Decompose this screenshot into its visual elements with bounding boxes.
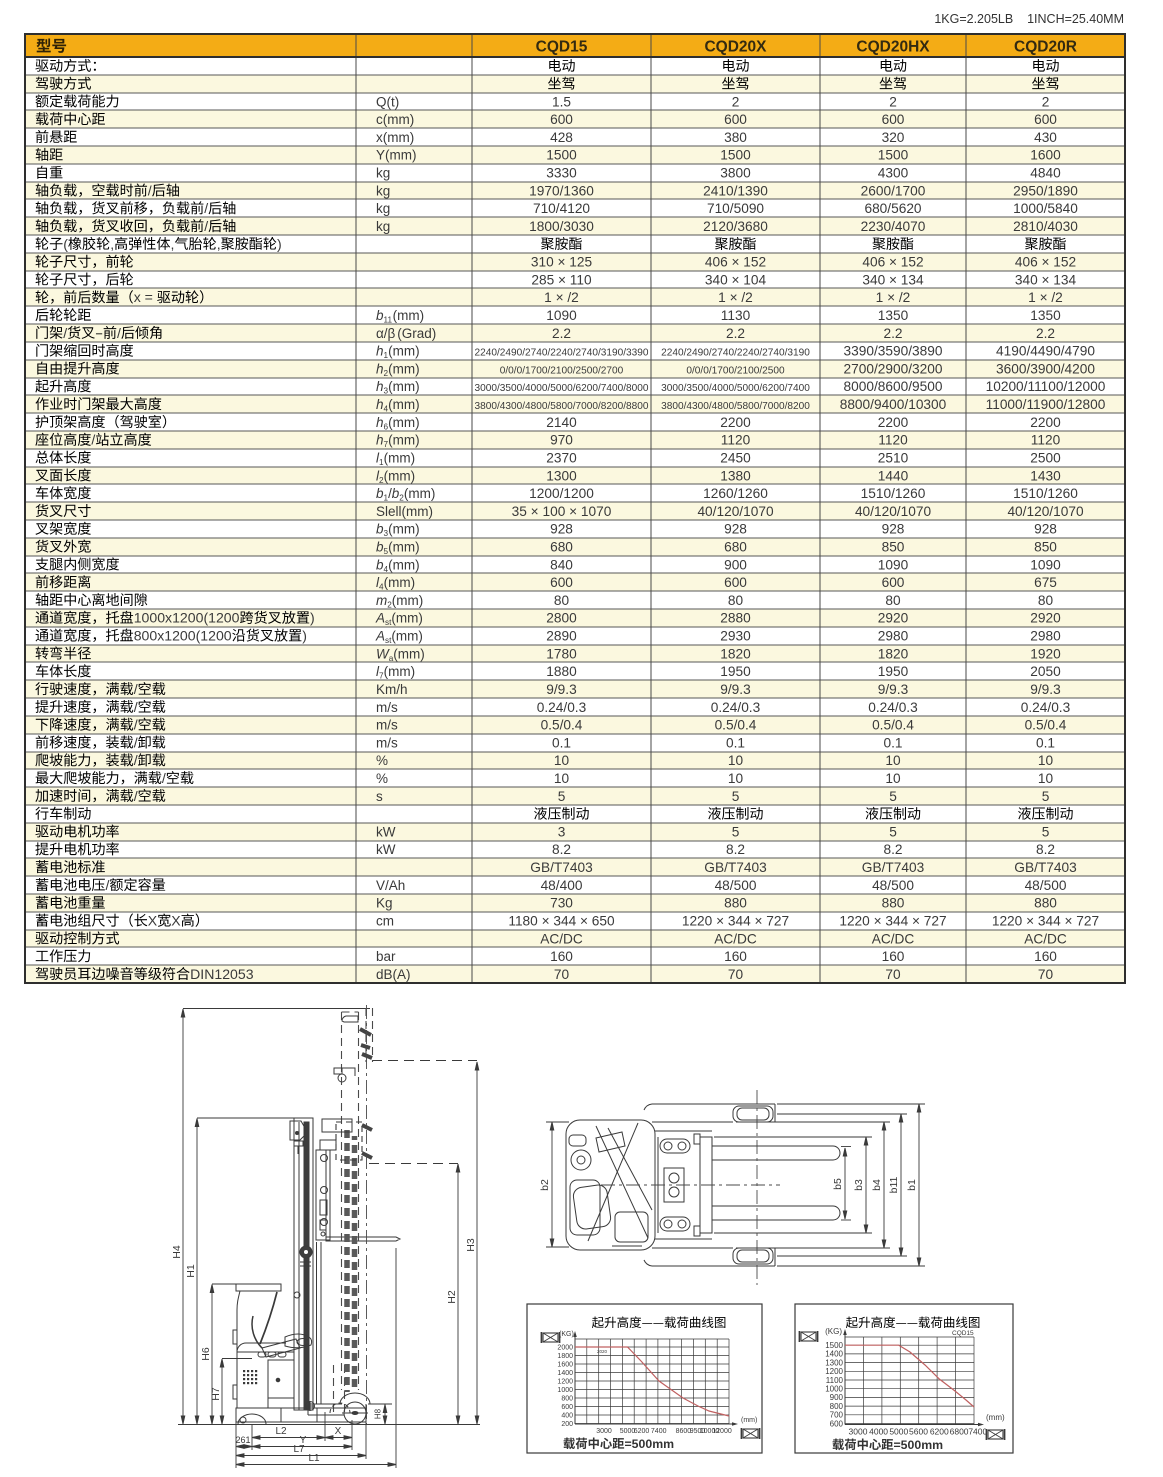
svg-text:2600/1700: 2600/1700 <box>861 183 926 198</box>
svg-text:0.24/0.3: 0.24/0.3 <box>537 700 587 715</box>
svg-text:1300: 1300 <box>546 468 577 483</box>
svg-text:970: 970 <box>550 433 573 448</box>
svg-text:880: 880 <box>1034 896 1057 911</box>
svg-text:1820: 1820 <box>720 646 751 661</box>
svg-text:1 × /2: 1 × /2 <box>544 290 579 305</box>
svg-text:1130: 1130 <box>721 308 751 323</box>
svg-text:1000x1200(1200: 1000x1200(1200 <box>134 610 240 626</box>
svg-text:1120: 1120 <box>1031 433 1061 448</box>
svg-text:1430: 1430 <box>1030 468 1061 483</box>
svg-text:80: 80 <box>885 593 901 608</box>
svg-text:600: 600 <box>550 112 573 127</box>
svg-text:Kg: Kg <box>376 896 393 911</box>
svg-text:kg: kg <box>376 166 390 181</box>
svg-text:2200: 2200 <box>720 415 751 430</box>
svg-text:48/400: 48/400 <box>541 878 583 893</box>
svg-text:9/9.3: 9/9.3 <box>720 682 751 697</box>
svg-text:1800/3030: 1800/3030 <box>529 219 594 234</box>
svg-text:1200: 1200 <box>825 1367 843 1376</box>
svg-text:=500mm: =500mm <box>625 1437 675 1451</box>
svg-text:3000: 3000 <box>849 1427 868 1437</box>
svg-text:600: 600 <box>1034 112 1057 127</box>
svg-text:1950: 1950 <box>878 664 909 679</box>
svg-text:1000: 1000 <box>825 1385 843 1394</box>
svg-text:680/5620: 680/5620 <box>864 201 921 216</box>
svg-text:3330: 3330 <box>546 166 577 181</box>
svg-text:h: h <box>376 379 384 394</box>
svg-text:5: 5 <box>558 789 566 804</box>
svg-text:(KG): (KG) <box>559 1331 574 1338</box>
svg-text:CQD15: CQD15 <box>952 1330 974 1337</box>
svg-text:160: 160 <box>1034 949 1057 964</box>
svg-text:2890: 2890 <box>546 629 577 644</box>
svg-text:1120: 1120 <box>721 433 751 448</box>
svg-text:h: h <box>376 361 384 376</box>
svg-text:2200: 2200 <box>1030 415 1061 430</box>
svg-text:X: X <box>335 1426 342 1437</box>
svg-text:): ) <box>302 628 307 644</box>
svg-text:2240/2490/2740/2240/2740/3190/: 2240/2490/2740/2240/2740/3190/3390 <box>474 348 648 359</box>
svg-text:2: 2 <box>889 94 897 109</box>
svg-text:m/s: m/s <box>376 735 398 750</box>
svg-text:c(mm): c(mm) <box>376 112 414 127</box>
svg-text:kg: kg <box>376 219 390 234</box>
svg-text:7400: 7400 <box>968 1427 987 1437</box>
svg-text:1880: 1880 <box>546 664 577 679</box>
svg-text:/: / <box>106 877 110 893</box>
svg-text:(mm): (mm) <box>986 1413 1005 1422</box>
svg-text:1780: 1780 <box>546 646 577 661</box>
svg-text:10: 10 <box>554 753 570 768</box>
svg-text:2920: 2920 <box>878 611 909 626</box>
svg-text:900: 900 <box>724 557 747 572</box>
svg-text:Q(t): Q(t) <box>376 94 399 109</box>
svg-text:406 × 152: 406 × 152 <box>1015 255 1076 270</box>
svg-text:600: 600 <box>724 112 747 127</box>
svg-text:/β: /β <box>384 326 396 341</box>
svg-text:406 × 152: 406 × 152 <box>705 255 766 270</box>
svg-text:h: h <box>376 433 384 448</box>
svg-text:X: X <box>171 913 181 929</box>
svg-text:800x1200(1200: 800x1200(1200 <box>134 628 232 644</box>
svg-text:2140: 2140 <box>546 415 577 430</box>
svg-text:kW: kW <box>376 824 396 839</box>
svg-text:8.2: 8.2 <box>883 842 902 857</box>
svg-text:380: 380 <box>724 130 747 145</box>
svg-text:(mm): (mm) <box>384 664 415 679</box>
svg-text:70: 70 <box>554 967 570 982</box>
svg-text:1260/1260: 1260/1260 <box>703 486 768 501</box>
svg-text:2.2: 2.2 <box>552 326 571 341</box>
svg-text:2920: 2920 <box>1030 611 1061 626</box>
svg-text:(mm): (mm) <box>388 522 419 537</box>
svg-text:2.2: 2.2 <box>726 326 745 341</box>
svg-text:0/0/0/1700/2100/2500: 0/0/0/1700/2100/2500 <box>686 365 785 376</box>
svg-text:b2: b2 <box>539 1179 551 1191</box>
svg-text:5: 5 <box>889 824 897 839</box>
svg-text:H2: H2 <box>446 1290 458 1304</box>
svg-text:40/120/1070: 40/120/1070 <box>1007 504 1084 519</box>
svg-text:0.5/0.4: 0.5/0.4 <box>715 718 757 733</box>
svg-text:DIN12053: DIN12053 <box>190 966 254 982</box>
svg-text:kW: kW <box>376 842 396 857</box>
svg-text:1950: 1950 <box>720 664 751 679</box>
svg-text:0.24/0.3: 0.24/0.3 <box>711 700 761 715</box>
svg-text:H7: H7 <box>210 1387 222 1401</box>
svg-text:x =: x = <box>134 289 153 305</box>
svg-text:(mm): (mm) <box>388 344 419 359</box>
svg-text:8.2: 8.2 <box>726 842 745 857</box>
svg-text:AC/DC: AC/DC <box>1024 931 1067 946</box>
svg-text:,: , <box>110 236 114 252</box>
svg-text:=500mm: =500mm <box>894 1438 944 1452</box>
svg-text:6200: 6200 <box>930 1427 949 1437</box>
svg-text:%: % <box>376 771 388 786</box>
svg-text:(mm): (mm) <box>393 308 424 323</box>
svg-text:1000/5840: 1000/5840 <box>1013 201 1078 216</box>
svg-text:80: 80 <box>554 593 570 608</box>
svg-text:850: 850 <box>1034 540 1057 555</box>
svg-text:/: / <box>134 717 138 733</box>
svg-text:7400: 7400 <box>651 1428 667 1435</box>
svg-text:α: α <box>376 326 384 341</box>
svg-text:48/500: 48/500 <box>1025 878 1067 893</box>
svg-text:h: h <box>376 344 384 359</box>
svg-text:1500: 1500 <box>546 148 577 163</box>
svg-text:2120/3680: 2120/3680 <box>703 219 768 234</box>
svg-text:0.1: 0.1 <box>1036 735 1055 750</box>
svg-text:1300: 1300 <box>825 1358 843 1367</box>
svg-text:8800/9400/10300: 8800/9400/10300 <box>840 397 947 412</box>
svg-text:4000: 4000 <box>869 1427 888 1437</box>
svg-text:10: 10 <box>728 753 744 768</box>
svg-text:H6: H6 <box>200 1347 212 1361</box>
svg-text:h: h <box>376 415 384 430</box>
svg-text:10: 10 <box>554 771 570 786</box>
svg-text:2700/2900/3200: 2700/2900/3200 <box>844 361 943 376</box>
svg-text:L7: L7 <box>293 1444 305 1455</box>
svg-text:2230/4070: 2230/4070 <box>861 219 926 234</box>
svg-text:/: / <box>134 734 138 750</box>
svg-text:710/4120: 710/4120 <box>533 201 590 216</box>
svg-text:800: 800 <box>561 1396 573 1403</box>
svg-text:1380: 1380 <box>720 468 751 483</box>
svg-text:0.1: 0.1 <box>883 735 902 750</box>
svg-text:850: 850 <box>882 540 905 555</box>
svg-text:48/500: 48/500 <box>872 878 914 893</box>
svg-text:2050: 2050 <box>1030 664 1061 679</box>
svg-text:900: 900 <box>830 1393 844 1402</box>
svg-text:/: / <box>204 218 208 234</box>
svg-text:11: 11 <box>384 316 393 325</box>
svg-text:3600/3900/4200: 3600/3900/4200 <box>996 361 1095 376</box>
svg-text:1120: 1120 <box>878 433 908 448</box>
svg-text:1400: 1400 <box>825 1350 843 1359</box>
svg-text:X: X <box>148 913 158 929</box>
svg-text:): ) <box>277 236 282 252</box>
svg-text:AC/DC: AC/DC <box>872 931 915 946</box>
svg-text:s: s <box>376 789 383 804</box>
svg-text:H1: H1 <box>185 1264 197 1278</box>
svg-text:5: 5 <box>732 789 740 804</box>
svg-text:2.2: 2.2 <box>1036 326 1055 341</box>
svg-text:3000/3500/4000/5000/6200/7400: 3000/3500/4000/5000/6200/7400 <box>661 383 810 394</box>
svg-text:m: m <box>376 593 387 608</box>
svg-text:2410/1390: 2410/1390 <box>703 183 768 198</box>
svg-text:(mm): (mm) <box>404 486 435 501</box>
svg-text:400: 400 <box>561 1413 573 1420</box>
svg-text:b3: b3 <box>853 1179 865 1191</box>
svg-text:Km/h: Km/h <box>376 682 408 697</box>
svg-text:428: 428 <box>550 130 573 145</box>
svg-text:AC/DC: AC/DC <box>540 931 583 946</box>
svg-text:1000: 1000 <box>557 1387 573 1394</box>
svg-text:2800: 2800 <box>546 611 577 626</box>
svg-text:928: 928 <box>1034 522 1057 537</box>
svg-text:(mm): (mm) <box>393 646 424 661</box>
svg-text:880: 880 <box>724 896 747 911</box>
svg-text:L2: L2 <box>275 1426 287 1437</box>
svg-text:2980: 2980 <box>1030 629 1061 644</box>
svg-text:b11: b11 <box>888 1176 900 1193</box>
svg-text:m/s: m/s <box>376 700 398 715</box>
svg-text:H8: H8 <box>374 1408 383 1419</box>
svg-text:3000: 3000 <box>596 1428 612 1435</box>
svg-text:70: 70 <box>1038 967 1054 982</box>
svg-text:H3: H3 <box>465 1238 477 1252</box>
svg-text:(mm): (mm) <box>388 415 419 430</box>
svg-text:3390/3590/3890: 3390/3590/3890 <box>844 344 943 359</box>
svg-text:5600: 5600 <box>909 1427 928 1437</box>
svg-text:1970/1360: 1970/1360 <box>529 183 594 198</box>
svg-text:40/120/1070: 40/120/1070 <box>697 504 774 519</box>
svg-text:680: 680 <box>724 540 747 555</box>
svg-text:(mm): (mm) <box>388 433 419 448</box>
svg-text:2200: 2200 <box>878 415 909 430</box>
svg-text:2810/4030: 2810/4030 <box>1013 219 1078 234</box>
svg-text:700: 700 <box>830 1411 844 1420</box>
svg-text:10: 10 <box>1038 771 1054 786</box>
svg-text:10: 10 <box>885 771 901 786</box>
svg-text:160: 160 <box>550 949 573 964</box>
svg-text:h: h <box>376 397 384 412</box>
svg-text:4190/4490/4790: 4190/4490/4790 <box>996 344 1095 359</box>
svg-text:710/5090: 710/5090 <box>707 201 764 216</box>
svg-text:430: 430 <box>1034 130 1057 145</box>
svg-text:840: 840 <box>550 557 573 572</box>
svg-text:1510/1260: 1510/1260 <box>1013 486 1078 501</box>
svg-text:b1: b1 <box>906 1179 918 1191</box>
svg-text:5: 5 <box>889 789 897 804</box>
svg-text:80: 80 <box>1038 593 1054 608</box>
svg-text:A: A <box>375 611 385 626</box>
svg-text:5: 5 <box>1042 824 1050 839</box>
svg-text:261: 261 <box>235 1435 250 1445</box>
svg-text:(mm): (mm) <box>741 1417 757 1424</box>
svg-text:1 × /2: 1 × /2 <box>876 290 911 305</box>
svg-text:600: 600 <box>882 575 905 590</box>
svg-text:1440: 1440 <box>878 468 909 483</box>
svg-text:3800/4300/4800/5800/7000/8200/: 3800/4300/4800/5800/7000/8200/8800 <box>474 401 648 412</box>
svg-text:1 × /2: 1 × /2 <box>1028 290 1063 305</box>
svg-text:cm: cm <box>376 914 394 929</box>
svg-text:600: 600 <box>830 1419 844 1428</box>
svg-text:/: / <box>134 681 138 697</box>
svg-text:L1: L1 <box>308 1453 320 1464</box>
svg-text:bar: bar <box>376 949 396 964</box>
svg-text:(mm): (mm) <box>392 593 423 608</box>
svg-text:10: 10 <box>1038 753 1054 768</box>
svg-text:,: , <box>217 236 221 252</box>
svg-text:2: 2 <box>1042 94 1050 109</box>
svg-text:3000/3500/4000/5000/6200/7400/: 3000/3500/4000/5000/6200/7400/8000 <box>474 383 648 394</box>
svg-text:340 × 104: 340 × 104 <box>705 272 767 287</box>
svg-text:9/9.3: 9/9.3 <box>546 682 577 697</box>
svg-text:0.24/0.3: 0.24/0.3 <box>868 700 918 715</box>
svg-text:Y(mm): Y(mm) <box>376 148 417 163</box>
svg-text:(mm): (mm) <box>388 557 419 572</box>
svg-text:,: , <box>171 236 175 252</box>
svg-text:2930: 2930 <box>720 629 751 644</box>
svg-text:8.2: 8.2 <box>552 842 571 857</box>
svg-text:200: 200 <box>561 1421 573 1428</box>
svg-text:285 × 110: 285 × 110 <box>531 272 592 287</box>
svg-text:/: / <box>162 770 166 786</box>
svg-text:(mm): (mm) <box>384 575 415 590</box>
svg-text:928: 928 <box>550 522 573 537</box>
svg-text:/: / <box>91 432 95 448</box>
svg-text:dB(A): dB(A) <box>376 967 411 982</box>
svg-text:0/0/0/1700/2100/2500/2700: 0/0/0/1700/2100/2500/2700 <box>500 365 624 376</box>
svg-text:CQD20R: CQD20R <box>1014 39 1077 56</box>
svg-text:160: 160 <box>882 949 905 964</box>
svg-text:CQD20HX: CQD20HX <box>856 39 930 56</box>
svg-text:5: 5 <box>1042 789 1050 804</box>
svg-text:0.1: 0.1 <box>726 735 745 750</box>
svg-text:b4: b4 <box>871 1179 883 1191</box>
svg-text:2950/1890: 2950/1890 <box>1013 183 1078 198</box>
svg-text:2510: 2510 <box>878 451 909 466</box>
svg-text:): ) <box>310 610 315 626</box>
svg-text:(KG): (KG) <box>825 1327 842 1336</box>
svg-text:A: A <box>375 629 385 644</box>
svg-text:680: 680 <box>550 540 573 555</box>
svg-text:1500: 1500 <box>825 1341 843 1350</box>
svg-text:(mm): (mm) <box>384 451 415 466</box>
svg-text:600: 600 <box>724 575 747 590</box>
svg-text:675: 675 <box>1034 575 1057 590</box>
svg-text:1920: 1920 <box>1030 646 1061 661</box>
svg-text:/: / <box>204 200 208 216</box>
svg-text:2000: 2000 <box>557 1345 573 1352</box>
svg-text:340 × 134: 340 × 134 <box>1015 272 1077 287</box>
svg-text:m/s: m/s <box>376 718 398 733</box>
svg-text:%: % <box>376 753 388 768</box>
svg-text:48/500: 48/500 <box>715 878 757 893</box>
svg-text:9/9.3: 9/9.3 <box>878 682 909 697</box>
svg-text:1180 × 344 × 650: 1180 × 344 × 650 <box>508 914 615 929</box>
svg-text:320: 320 <box>882 130 905 145</box>
svg-text:H4: H4 <box>171 1245 183 1259</box>
svg-text:10: 10 <box>728 771 744 786</box>
svg-text:1220 × 344 × 727: 1220 × 344 × 727 <box>839 914 946 929</box>
svg-text:1510/1260: 1510/1260 <box>861 486 926 501</box>
svg-text:4300: 4300 <box>878 166 909 181</box>
svg-text:730: 730 <box>550 896 573 911</box>
svg-text:Slell(mm): Slell(mm) <box>376 504 433 519</box>
svg-text:1100: 1100 <box>826 1376 844 1385</box>
svg-text:880: 880 <box>882 896 905 911</box>
svg-text:2880: 2880 <box>720 611 751 626</box>
svg-text:2980: 2980 <box>878 629 909 644</box>
svg-text:1220 × 344 × 727: 1220 × 344 × 727 <box>992 914 1099 929</box>
svg-text:1090: 1090 <box>878 557 909 572</box>
svg-text:928: 928 <box>882 522 905 537</box>
svg-text:kg: kg <box>376 183 390 198</box>
svg-text:GB/T7403: GB/T7403 <box>1014 860 1077 875</box>
svg-text:406 × 152: 406 × 152 <box>862 255 923 270</box>
svg-text:3800: 3800 <box>720 166 751 181</box>
svg-text:0.5/0.4: 0.5/0.4 <box>872 718 914 733</box>
svg-text:kg: kg <box>376 201 390 216</box>
svg-text:70: 70 <box>728 967 744 982</box>
svg-text:340 × 134: 340 × 134 <box>862 272 924 287</box>
svg-text:/: / <box>134 752 138 768</box>
svg-text:GB/T7403: GB/T7403 <box>862 860 925 875</box>
svg-text:1090: 1090 <box>546 308 577 323</box>
svg-text:(mm): (mm) <box>388 397 419 412</box>
svg-text:310 × 125: 310 × 125 <box>531 255 593 270</box>
svg-text:CQD15: CQD15 <box>536 39 588 56</box>
svg-text:(mm): (mm) <box>384 468 415 483</box>
svg-text:10: 10 <box>885 753 901 768</box>
svg-text:11000/11900/12800: 11000/11900/12800 <box>986 397 1106 412</box>
svg-text:160: 160 <box>724 949 747 964</box>
svg-text:0.1: 0.1 <box>552 735 571 750</box>
svg-text:(mm): (mm) <box>388 379 419 394</box>
svg-text:0.5/0.4: 0.5/0.4 <box>1025 718 1067 733</box>
svg-text:800: 800 <box>830 1402 844 1411</box>
svg-text:1600: 1600 <box>557 1362 573 1369</box>
svg-text:(Grad): (Grad) <box>397 326 436 341</box>
svg-text:GB/T7403: GB/T7403 <box>704 860 767 875</box>
svg-text:/: / <box>63 325 67 341</box>
svg-text:(: ( <box>63 236 68 252</box>
svg-text:AC/DC: AC/DC <box>714 931 757 946</box>
svg-text:600: 600 <box>882 112 905 127</box>
svg-text:928: 928 <box>724 522 747 537</box>
svg-text:1200: 1200 <box>557 1379 573 1386</box>
svg-text:2240/2490/2740/2240/2740/3190: 2240/2490/2740/2240/2740/3190 <box>661 348 810 359</box>
svg-text:12000: 12000 <box>712 1428 732 1435</box>
svg-text:/: / <box>134 699 138 715</box>
svg-text:/: / <box>117 325 121 341</box>
svg-text:8.2: 8.2 <box>1036 842 1055 857</box>
svg-text:1600: 1600 <box>1030 148 1061 163</box>
svg-text:0.24/0.3: 0.24/0.3 <box>1021 700 1071 715</box>
svg-text:600: 600 <box>561 1404 573 1411</box>
svg-text:/: / <box>148 182 152 198</box>
svg-text:1 × /2: 1 × /2 <box>718 290 753 305</box>
svg-text:35 × 100 × 1070: 35 × 100 × 1070 <box>512 504 612 519</box>
svg-text:2.2: 2.2 <box>883 326 902 341</box>
svg-text:(mm): (mm) <box>388 540 419 555</box>
svg-text:(mm): (mm) <box>391 629 422 644</box>
svg-text:x(mm): x(mm) <box>376 130 414 145</box>
svg-text:8000/8600/9500: 8000/8600/9500 <box>844 379 943 394</box>
svg-text:2370: 2370 <box>546 451 577 466</box>
svg-text:1500: 1500 <box>720 148 751 163</box>
